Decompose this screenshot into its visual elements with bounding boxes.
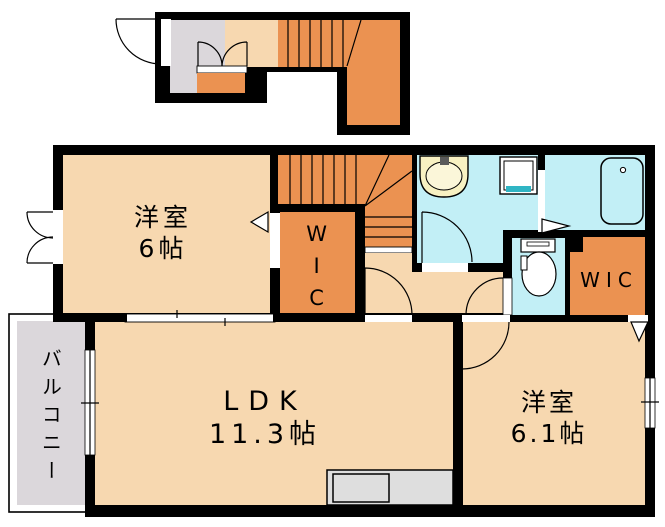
closet-doors: [197, 66, 247, 73]
toilet-tank-lid: [527, 242, 549, 246]
bedroom1-sliding-door: [125, 314, 275, 322]
bedroom1-label: 洋室 6帖: [83, 203, 243, 264]
bedroom1-size: 6帖: [83, 234, 243, 265]
bedroom2-door-opening: [462, 315, 510, 322]
ldk-label: LDK 11.3帖: [165, 386, 365, 452]
entrance-door: [161, 19, 171, 66]
sliding-door-endcap-right: [273, 314, 277, 322]
wic2-door-opening: [628, 315, 648, 322]
washroom-door-opening: [422, 263, 468, 272]
ldk-name: LDK: [165, 386, 365, 419]
bedroom1-window: [53, 210, 63, 264]
washer-drain: [506, 186, 531, 192]
bedroom1-window-casements: [27, 212, 53, 263]
ldk-door-opening: [365, 315, 412, 322]
bathtub-drain: [620, 167, 625, 172]
bedroom2-label: 洋室 6.1帖: [463, 388, 635, 449]
washing-machine-pan-inner: [504, 161, 533, 190]
shoe-closet: [197, 73, 245, 93]
washbasin-bowl: [426, 162, 462, 190]
wic1-label: WIC: [303, 222, 329, 322]
exterior-notch: [267, 72, 337, 103]
toilet-control: [521, 256, 527, 270]
bedroom2-size: 6.1帖: [463, 419, 635, 450]
kitchen-sink: [333, 474, 389, 502]
bedroom2-name: 洋室: [463, 388, 635, 419]
ldk-size: 11.3帖: [165, 419, 365, 452]
entry-hall: [225, 20, 278, 67]
washbasin-faucet: [440, 157, 449, 165]
stair-landing-strip: [365, 247, 412, 253]
balcony-label: バルコニー: [38, 348, 62, 513]
entrance-level: [116, 12, 410, 135]
entrance-door-swing: [116, 19, 161, 64]
wic1-door-opening: [270, 213, 280, 268]
floor-plan: 洋室 6帖 WIC LDK 11.3帖 洋室 6.1帖 WIC バルコニー: [0, 0, 665, 527]
wic2-wall-notch: [570, 237, 583, 252]
toilet-door: [503, 278, 512, 315]
wic2-label: WIC: [573, 268, 645, 292]
bedroom1-name: 洋室: [83, 203, 243, 234]
sliding-door-endcap-left: [123, 314, 127, 322]
